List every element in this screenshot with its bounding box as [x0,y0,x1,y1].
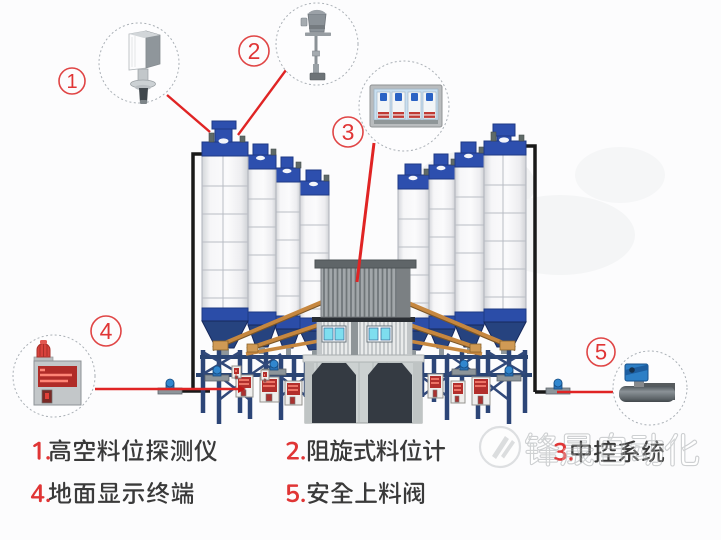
svg-text:3: 3 [342,119,355,145]
svg-text:2: 2 [248,38,261,64]
svg-text:4: 4 [100,318,113,344]
svg-text:5: 5 [595,339,607,364]
svg-text:1: 1 [66,71,77,93]
